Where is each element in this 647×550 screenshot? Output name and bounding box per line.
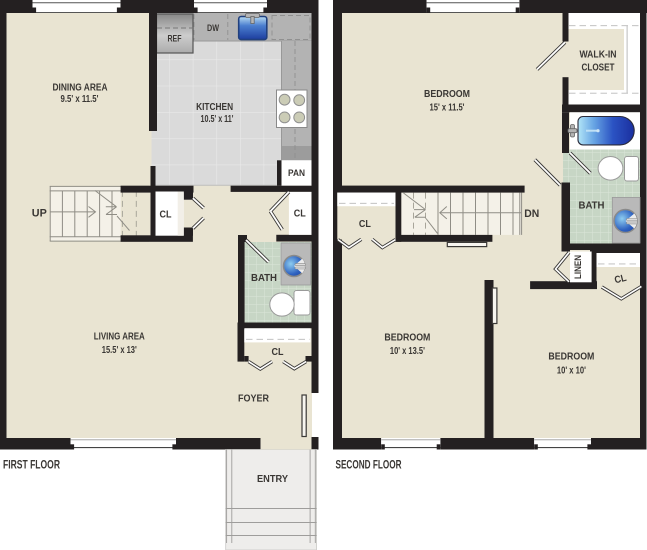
- svg-text:10' x 10': 10' x 10': [557, 364, 586, 376]
- svg-text:UP: UP: [32, 207, 47, 219]
- svg-text:CL: CL: [294, 209, 306, 220]
- svg-text:SECOND FLOOR: SECOND FLOOR: [336, 457, 402, 471]
- svg-text:BEDROOM: BEDROOM: [424, 88, 470, 100]
- svg-text:LIVING AREA: LIVING AREA: [94, 331, 145, 343]
- svg-text:DN: DN: [524, 208, 539, 220]
- svg-text:PAN: PAN: [288, 168, 305, 179]
- svg-text:15' x 11.5': 15' x 11.5': [430, 102, 465, 114]
- svg-text:15.5' x 13': 15.5' x 13': [102, 344, 137, 356]
- svg-text:CL: CL: [272, 347, 284, 358]
- svg-text:CL: CL: [160, 210, 172, 221]
- svg-text:9.5' x 11.5': 9.5' x 11.5': [61, 93, 99, 105]
- svg-text:BATH: BATH: [579, 199, 605, 211]
- svg-text:10.5' x 11': 10.5' x 11': [201, 113, 234, 125]
- svg-text:LINEN: LINEN: [573, 255, 583, 279]
- svg-text:WALK-IN: WALK-IN: [580, 48, 617, 60]
- svg-text:CL: CL: [359, 219, 371, 230]
- svg-text:10' x 13.5': 10' x 13.5': [390, 345, 425, 357]
- svg-text:DINING AREA: DINING AREA: [53, 81, 108, 93]
- svg-text:FOYER: FOYER: [238, 392, 269, 404]
- svg-text:BEDROOM: BEDROOM: [384, 332, 430, 344]
- svg-text:ENTRY: ENTRY: [257, 473, 288, 485]
- svg-text:BATH: BATH: [251, 272, 277, 284]
- svg-text:DW: DW: [207, 23, 219, 33]
- svg-text:FIRST FLOOR: FIRST FLOOR: [3, 457, 60, 471]
- svg-text:REF: REF: [168, 34, 182, 44]
- svg-text:KITCHEN: KITCHEN: [196, 101, 233, 113]
- svg-text:BEDROOM: BEDROOM: [548, 350, 594, 362]
- svg-text:CLOSET: CLOSET: [582, 61, 615, 73]
